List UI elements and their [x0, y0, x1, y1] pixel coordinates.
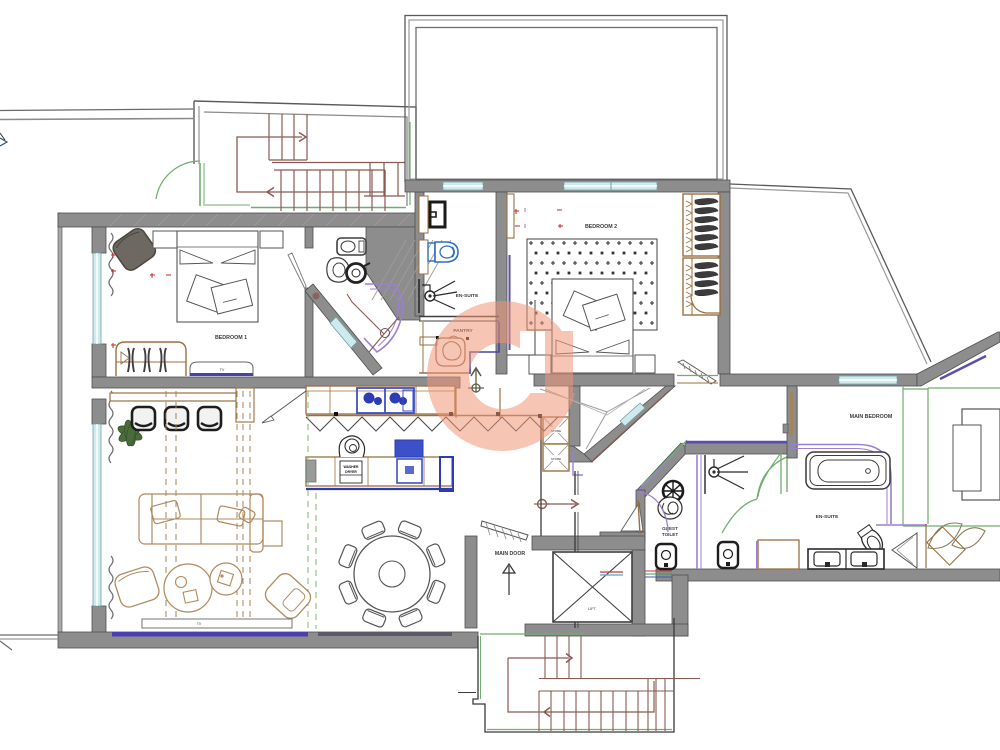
svg-text:EN-SUITE: EN-SUITE — [816, 514, 840, 520]
svg-text:BEDROOM 1: BEDROOM 1 — [215, 335, 247, 341]
svg-text:LIFT: LIFT — [588, 606, 597, 611]
svg-text:BEDROOM 2: BEDROOM 2 — [585, 224, 617, 230]
svg-text:GUEST: GUEST — [662, 526, 678, 531]
svg-text:DRYER: DRYER — [345, 470, 357, 474]
svg-text:TV: TV — [197, 622, 202, 626]
svg-text:WASHER: WASHER — [344, 465, 359, 469]
svg-text:TOILET: TOILET — [662, 532, 678, 537]
svg-text:TV: TV — [220, 368, 225, 372]
svg-text:MAIN DOOR: MAIN DOOR — [495, 551, 526, 557]
svg-text:MAIN BEDROOM: MAIN BEDROOM — [850, 414, 893, 420]
svg-text:STORE: STORE — [551, 457, 561, 461]
